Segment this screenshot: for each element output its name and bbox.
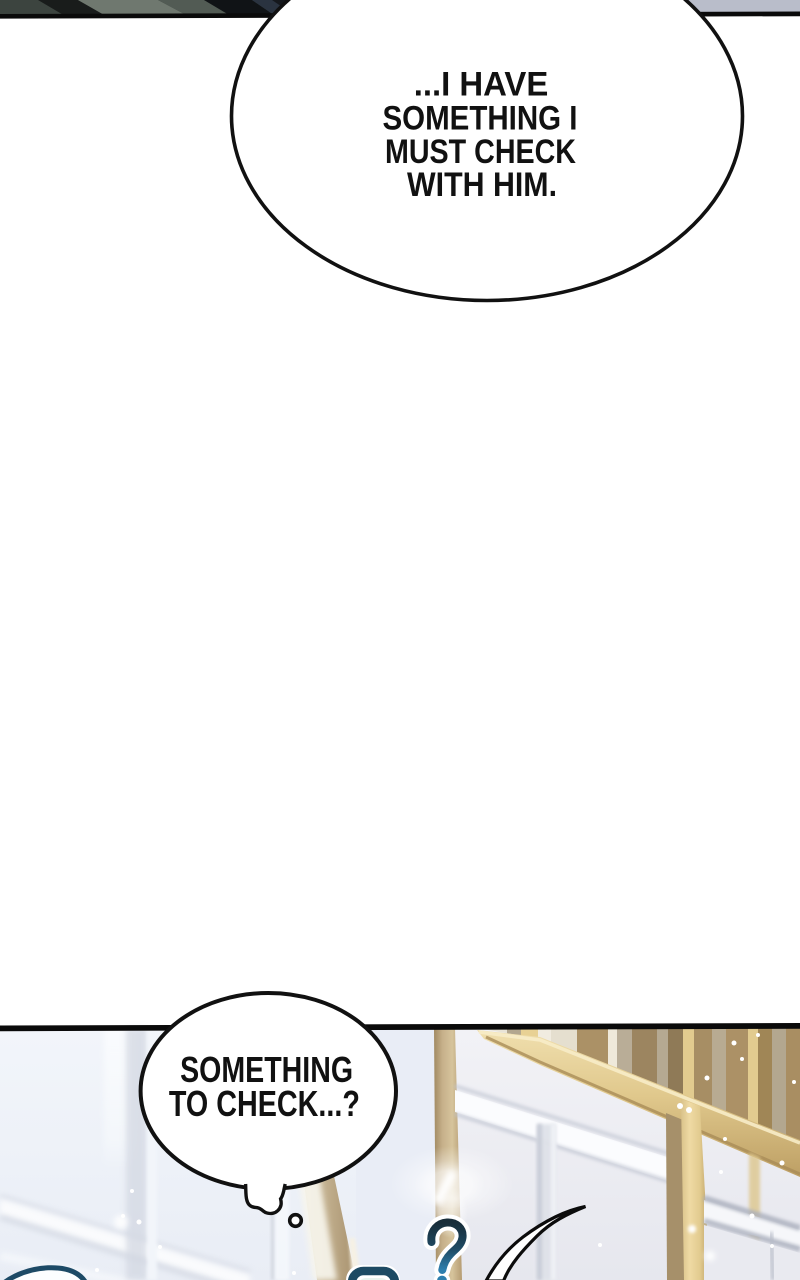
svg-text:...I HAVE: ...I HAVE [414, 65, 549, 103]
svg-text:SOMETHING I: SOMETHING I [383, 100, 578, 138]
svg-text:TO CHECK...?: TO CHECK...? [169, 1083, 360, 1124]
svg-text:WITH HIM.: WITH HIM. [407, 166, 557, 204]
